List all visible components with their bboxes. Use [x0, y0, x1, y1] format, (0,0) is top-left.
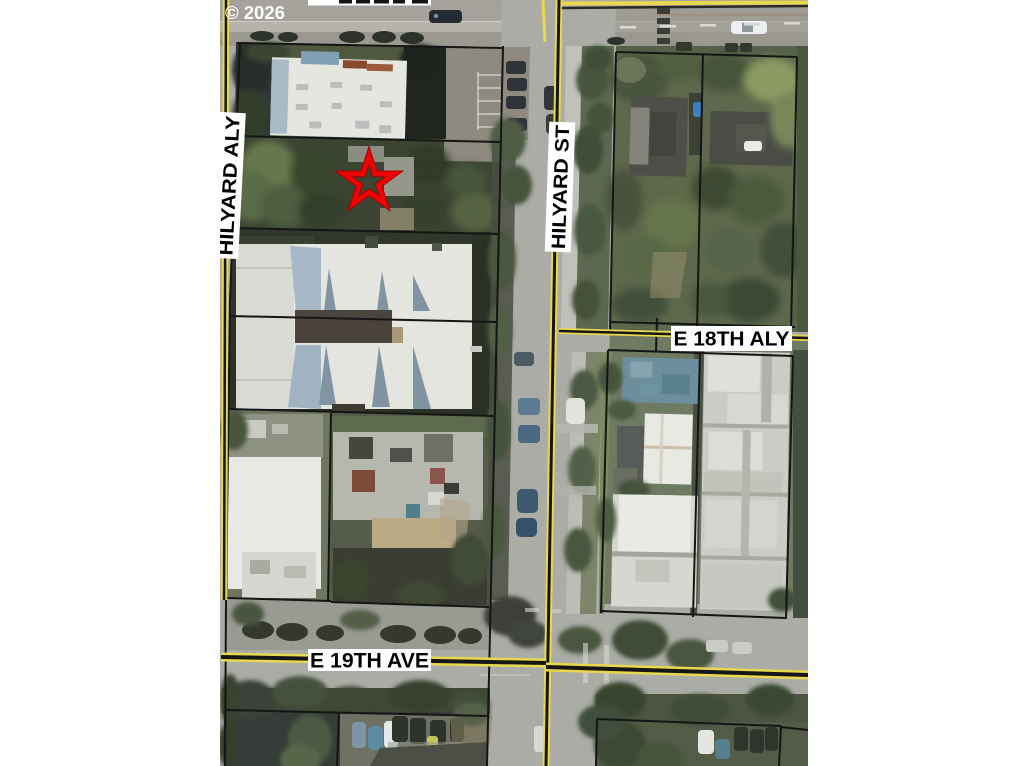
svg-text:E 18TH ALY: E 18TH ALY: [674, 328, 790, 351]
svg-text:E 19TH AVE: E 19TH AVE: [310, 650, 429, 673]
svg-text:HILYARD ST: HILYARD ST: [548, 125, 574, 250]
svg-text:© 2026: © 2026: [225, 2, 285, 23]
